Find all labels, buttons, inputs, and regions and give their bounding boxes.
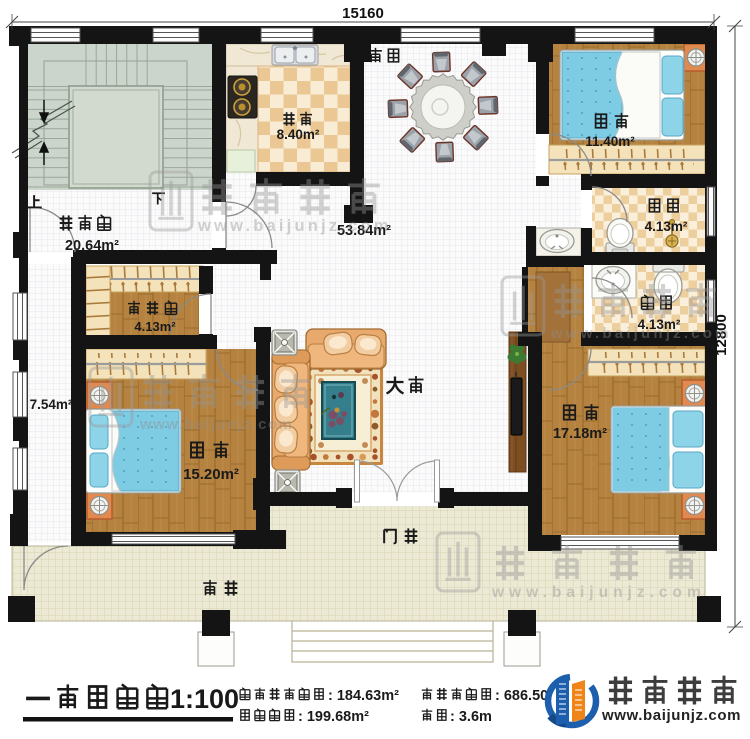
svg-text:11.40m²: 11.40m² xyxy=(585,134,635,149)
svg-text:www.baijunjz.com: www.baijunjz.com xyxy=(550,325,732,342)
svg-text:15160: 15160 xyxy=(342,5,384,22)
svg-text:4.13m²: 4.13m² xyxy=(645,219,688,234)
svg-text:15.20m²: 15.20m² xyxy=(183,466,239,483)
svg-text:www.baijunjz.com: www.baijunjz.com xyxy=(601,707,741,724)
svg-text:1:100: 1:100 xyxy=(170,684,239,714)
svg-text:20.64m²: 20.64m² xyxy=(65,238,119,254)
svg-text:: 199.68m²: : 199.68m² xyxy=(298,709,369,725)
svg-text:7.54m²: 7.54m² xyxy=(30,397,73,412)
svg-text:www.baijunjz.com: www.baijunjz.com xyxy=(139,416,293,433)
svg-text:: 686.50: : 686.50 xyxy=(495,688,548,704)
svg-text:www.baijunjz.com: www.baijunjz.com xyxy=(197,217,392,235)
svg-text:8.40m²: 8.40m² xyxy=(277,127,320,142)
svg-text:: 3.6m: : 3.6m xyxy=(450,709,492,725)
svg-text:4.13m²: 4.13m² xyxy=(134,319,176,334)
svg-text:www.baijunjz.com: www.baijunjz.com xyxy=(491,584,706,601)
svg-text:17.18m²: 17.18m² xyxy=(553,426,607,442)
svg-text:: 184.63m²: : 184.63m² xyxy=(328,688,399,704)
